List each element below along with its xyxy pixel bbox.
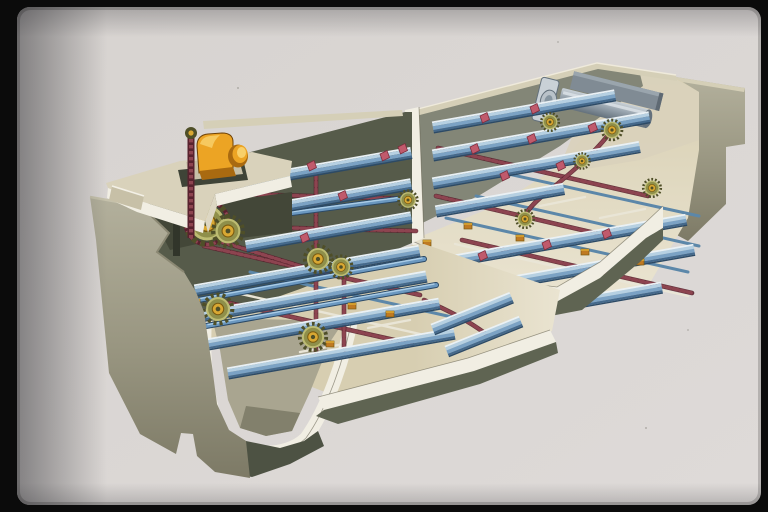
vignette-top [17, 7, 761, 37]
vignette-bottom [17, 483, 761, 505]
vignette-left [17, 7, 107, 505]
screenshot-root [0, 0, 768, 512]
slide-illustration [0, 0, 768, 512]
